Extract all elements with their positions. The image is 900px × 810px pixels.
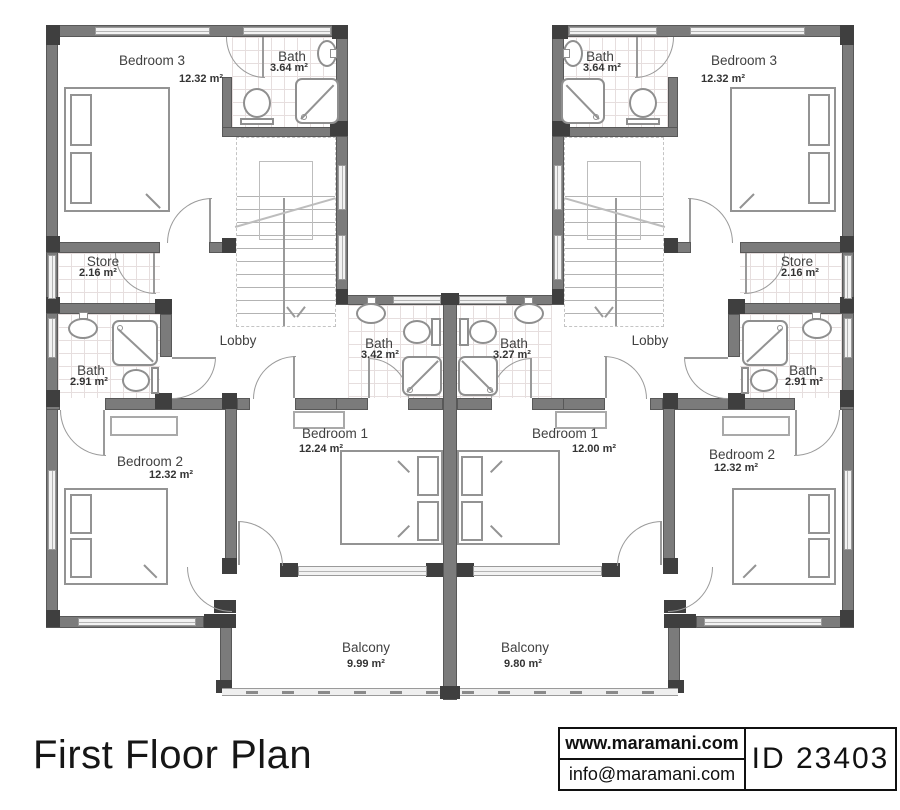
floor-plan-canvas: Bedroom 3 12.32 m² Bath 3.64 m² Store 2.… [0,0,900,810]
room-label-lobby-left: Lobby [220,334,257,348]
plan-id: ID 23403 [746,729,895,789]
room-area-bedroom2-right: 12.32 m² [714,463,758,475]
room-label-bedroom1-right: Bedroom 1 [532,427,598,441]
room-label-balcony-left: Balcony [342,641,390,655]
labels-layer: Bedroom 3 12.32 m² Bath 3.64 m² Store 2.… [0,0,900,810]
room-area-store-left: 2.16 m² [79,268,117,280]
room-area-bath-center-left: 3.42 m² [361,350,399,362]
title-block: www.maramani.com info@maramani.com ID 23… [558,727,897,791]
room-area-bedroom1-left: 12.24 m² [299,444,343,456]
page-title: First Floor Plan [33,733,312,778]
room-area-balcony-left: 9.99 m² [347,659,385,671]
room-area-bedroom1-right: 12.00 m² [572,444,616,456]
room-area-bath-center-right: 3.27 m² [493,350,531,362]
room-label-bedroom3-right: Bedroom 3 [711,54,777,68]
room-label-lobby-right: Lobby [632,334,669,348]
room-area-bedroom2-left: 12.32 m² [149,470,193,482]
email-link[interactable]: info@maramani.com [560,760,744,789]
room-area-balcony-right: 9.80 m² [504,659,542,671]
contact-column: www.maramani.com info@maramani.com [560,729,746,789]
room-label-bedroom3-left: Bedroom 3 [119,54,185,68]
room-area-store-right: 2.16 m² [781,268,819,280]
room-area-bath-side-left: 2.91 m² [70,377,108,389]
room-area-bedroom3-left: 12.32 m² [179,74,223,86]
room-label-bedroom2-right: Bedroom 2 [709,448,775,462]
room-area-bath-top-right: 3.64 m² [583,63,621,75]
website-link[interactable]: www.maramani.com [560,729,744,760]
room-label-bedroom1-left: Bedroom 1 [302,427,368,441]
room-label-balcony-right: Balcony [501,641,549,655]
room-label-bedroom2-left: Bedroom 2 [117,455,183,469]
room-area-bath-top-left: 3.64 m² [270,63,308,75]
room-area-bedroom3-right: 12.32 m² [701,74,745,86]
room-area-bath-side-right: 2.91 m² [785,377,823,389]
